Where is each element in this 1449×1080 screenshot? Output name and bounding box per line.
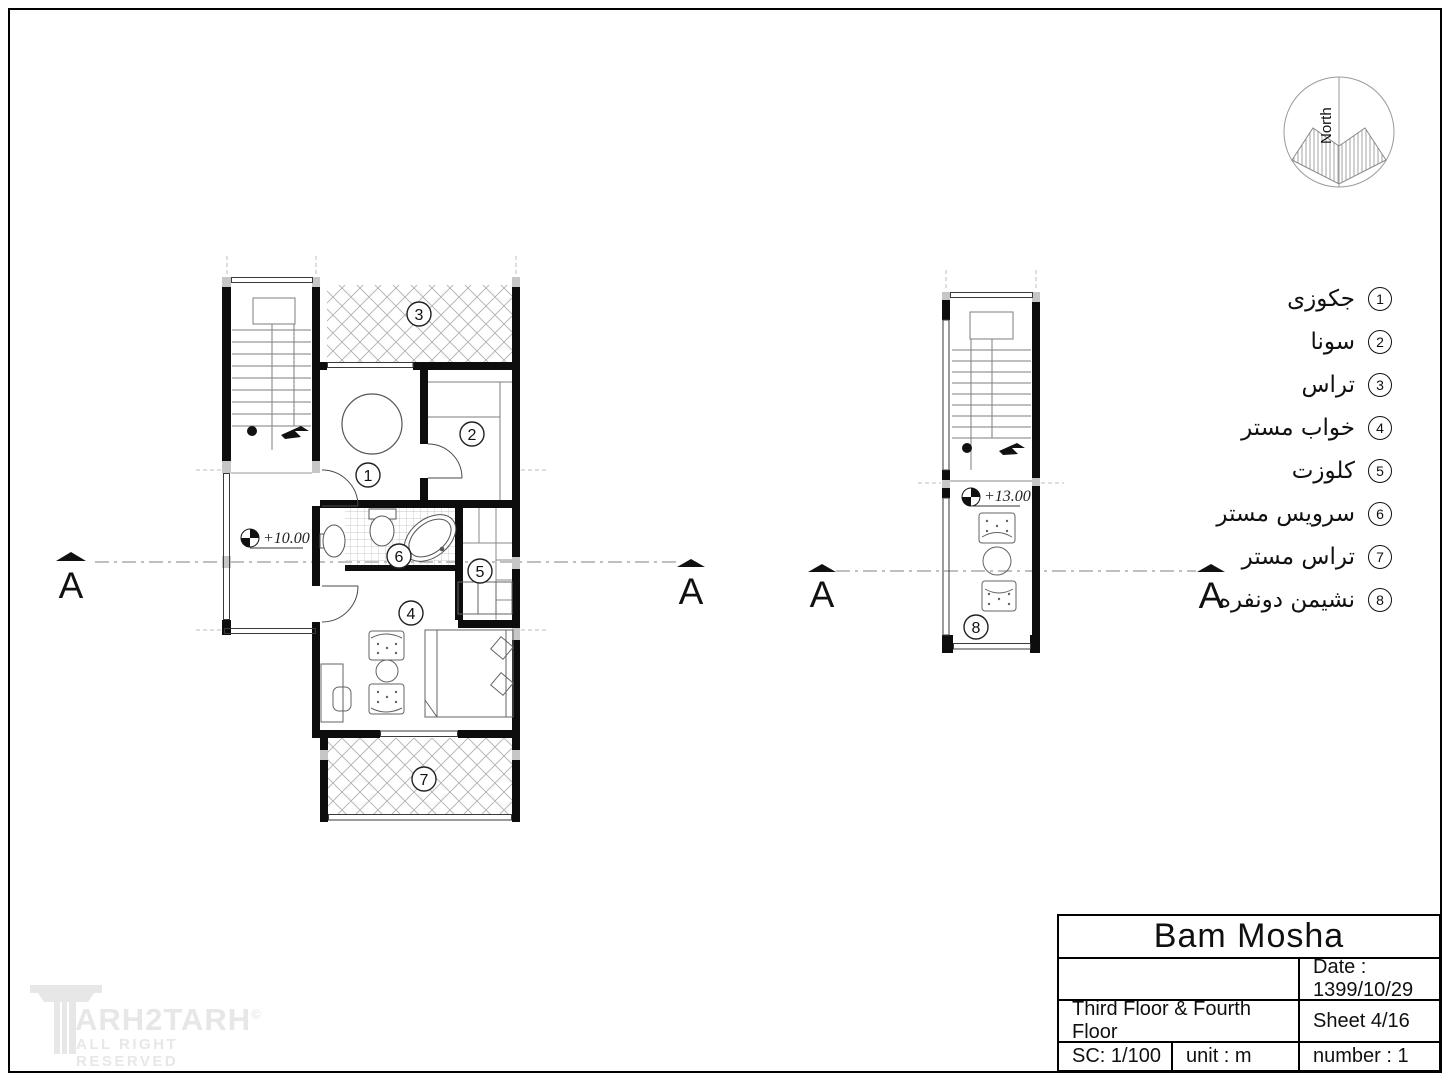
light-walls [943,293,1033,650]
legend-label: تراس مستر [1242,544,1355,570]
walls [942,298,1040,653]
legend-number-badge: 5 [1368,459,1392,483]
scale-value: SC: 1/100 [1059,1043,1171,1070]
left-floor-plan: +10.00 3 1 2 6 5 4 7 [222,277,520,822]
legend-number-badge: 4 [1368,416,1392,440]
legend-item-3: تراس 3 [1216,363,1392,406]
room-legend: جکوزی 1 سونا 2 تراس 3 خواب مستر 4 کلوزت … [1216,277,1392,621]
north-arrow: North [1284,77,1394,187]
room-number: 1 [364,468,373,485]
section-arrow-icon [677,559,705,567]
section-line-a-a: A A A A [56,552,1225,616]
section-marker-label: A [59,565,84,606]
stair-start-dot [247,426,257,436]
legend-label: تراس [1301,372,1355,398]
floor-label: Third Floor & Fourth Floor [1059,1001,1298,1041]
north-label: North [1318,107,1335,144]
room-number: 2 [468,427,477,444]
grid-tick-lines [196,256,1064,630]
legend-label: خواب مستر [1241,415,1355,441]
room-number: 4 [407,606,416,623]
legend-number-badge: 7 [1368,545,1392,569]
level-value: +13.00 [984,488,1031,505]
watermark: ARH2TARH© ALL RIGHT RESERVED [28,978,258,1064]
room-number: 8 [972,620,981,637]
jacuzzi-fixture [342,394,402,454]
section-marker-label: A [679,571,704,612]
section-arrow-icon [808,564,836,572]
room-number: 6 [395,549,404,566]
legend-number-badge: 3 [1368,373,1392,397]
legend-number-badge: 6 [1368,502,1392,526]
stair-direction-arrow-icon [281,426,309,439]
section-marker-label: A [810,574,835,615]
stair-start-dot [962,443,972,453]
legend-item-2: سونا 2 [1216,320,1392,363]
level-datum-left: +10.00 [241,529,310,548]
right-floor-plan: +13.00 8 [942,292,1040,653]
column-markers [942,292,1040,488]
legend-label: جکوزی [1287,286,1355,312]
legend-number-badge: 2 [1368,330,1392,354]
legend-label: کلوزت [1292,458,1355,484]
legend-number-badge: 1 [1368,287,1392,311]
title-block: Bam Mosha Date : 1399/10/29 Third Floor … [1057,914,1441,1072]
legend-item-1: جکوزی 1 [1216,277,1392,320]
unit-value: unit : m [1171,1043,1298,1070]
sitting-furniture [979,513,1016,611]
date-value: Date : 1399/10/29 [1298,959,1439,999]
legend-item-6: سرویس مستر 6 [1216,492,1392,535]
legend-number-badge: 8 [1368,588,1392,612]
sheet-number: Sheet 4/16 [1298,1001,1439,1041]
room-number: 3 [415,307,424,324]
legend-label: سرویس مستر [1216,501,1355,527]
room-number: 5 [476,564,485,581]
titleblock-empty-cell [1059,959,1298,999]
section-arrow-icon [56,552,86,561]
legend-item-8: نشیمن دونفره 8 [1216,578,1392,621]
stair-direction-arrow-icon [999,443,1025,455]
level-value: +10.00 [263,530,310,547]
number-value: number : 1 [1298,1043,1439,1070]
legend-item-7: تراس مستر 7 [1216,535,1392,578]
room-number: 7 [420,772,429,789]
legend-label: سونا [1310,329,1355,355]
drawing-sheet: North A A A A [0,0,1449,1080]
copyright-mark: © [251,1007,262,1022]
watermark-brand: ARH2TARH© [75,1002,262,1038]
armchair-dots [377,643,397,703]
watermark-brand-text: ARH2TARH [75,1002,251,1037]
legend-item-4: خواب مستر 4 [1216,406,1392,449]
project-title: Bam Mosha [1059,916,1439,957]
legend-label: نشیمن دونفره [1219,587,1355,613]
watermark-tagline: ALL RIGHT RESERVED [76,1036,258,1070]
legend-item-5: کلوزت 5 [1216,449,1392,492]
level-datum-right: +13.00 [962,488,1031,506]
